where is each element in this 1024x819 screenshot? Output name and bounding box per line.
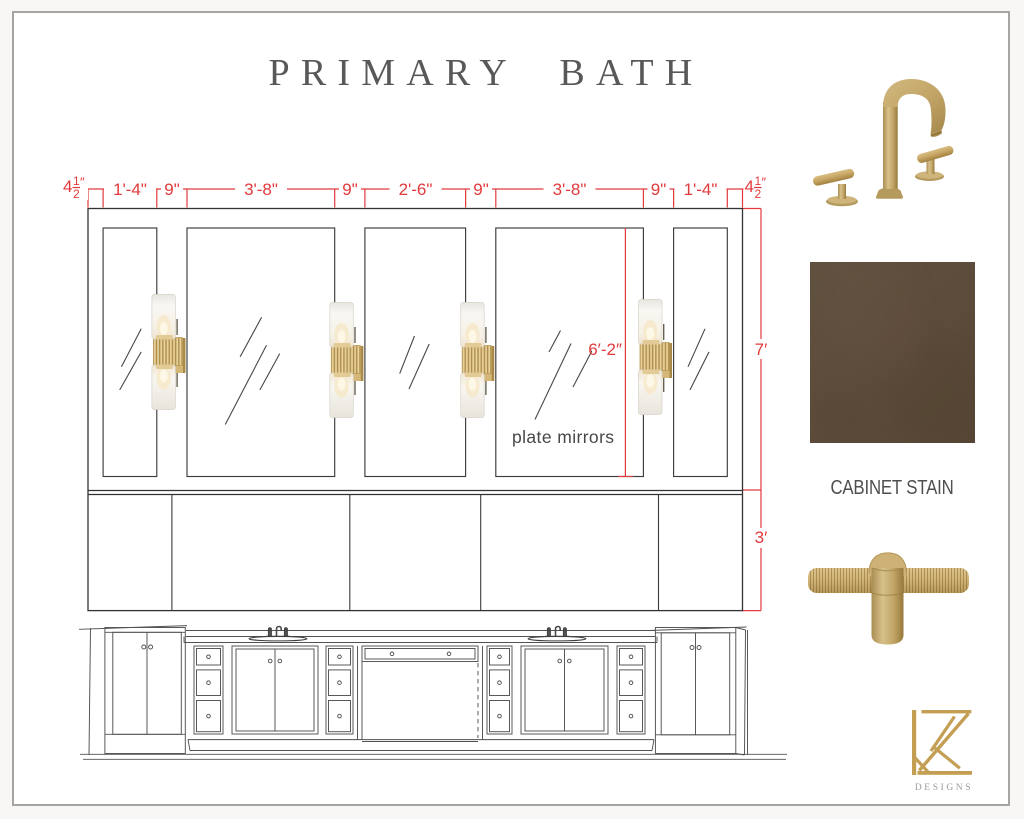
svg-text:″: ″	[762, 175, 767, 190]
svg-text:″: ″	[80, 175, 85, 190]
svg-text:CABINET STAIN: CABINET STAIN	[830, 476, 953, 499]
svg-text:3'-8": 3'-8"	[553, 180, 587, 199]
svg-text:1: 1	[73, 174, 80, 188]
svg-text:plate mirrors: plate mirrors	[512, 427, 614, 447]
svg-text:2: 2	[755, 187, 762, 201]
svg-text:9": 9"	[651, 180, 667, 199]
svg-text:DESIGNS: DESIGNS	[915, 783, 973, 793]
svg-text:4: 4	[745, 177, 754, 196]
svg-text:1'-4": 1'-4"	[113, 180, 147, 199]
svg-text:9": 9"	[473, 180, 489, 199]
svg-text:6′-2″: 6′-2″	[588, 340, 622, 359]
svg-text:1'-4": 1'-4"	[684, 180, 718, 199]
svg-text:3'-8": 3'-8"	[244, 180, 278, 199]
svg-text:7′: 7′	[755, 340, 768, 359]
svg-text:2: 2	[73, 187, 80, 201]
svg-text:4: 4	[63, 177, 72, 196]
svg-text:2'-6": 2'-6"	[399, 180, 433, 199]
svg-text:1: 1	[755, 174, 762, 188]
svg-text:9": 9"	[342, 180, 358, 199]
svg-text:3′: 3′	[755, 528, 768, 547]
svg-text:9": 9"	[164, 180, 180, 199]
